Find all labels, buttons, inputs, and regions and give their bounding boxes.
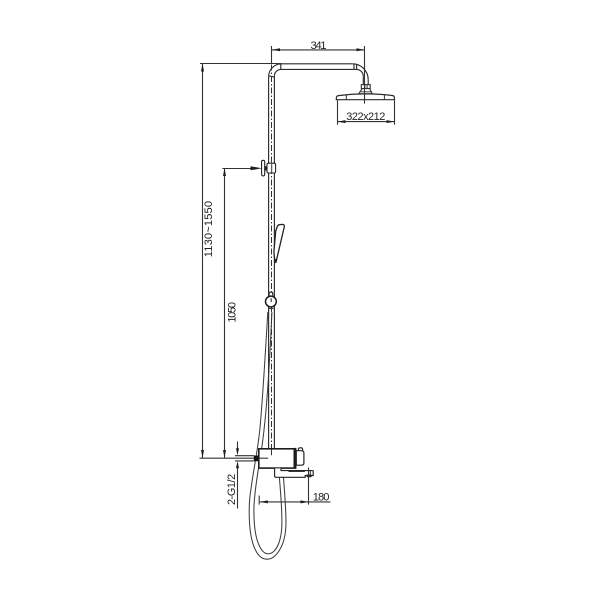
svg-text:322x212: 322x212 [346,111,385,123]
svg-text:1050: 1050 [227,302,239,323]
svg-text:341: 341 [311,40,327,52]
svg-text:2-G1/2: 2-G1/2 [226,474,238,505]
svg-text:180: 180 [313,491,330,503]
svg-text:1130~1550: 1130~1550 [203,201,215,257]
